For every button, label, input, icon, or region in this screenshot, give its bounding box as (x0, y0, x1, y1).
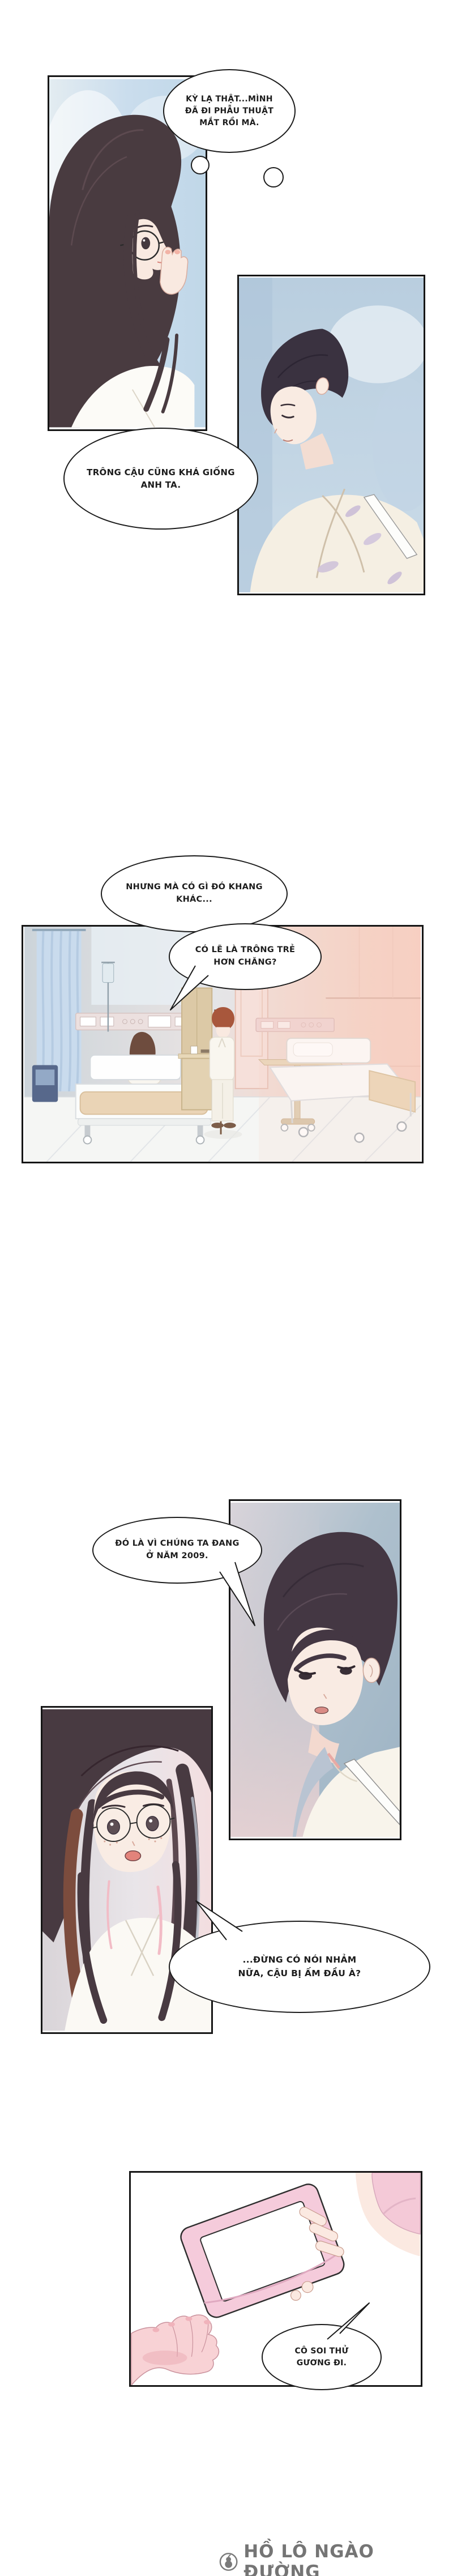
bubble-line: TRÔNG CẬU CŨNG KHÁ GIỐNG (87, 466, 235, 479)
bubble-line: ĐÃ ĐI PHẪU THUẬT (185, 105, 273, 117)
translator-credit: HỒ LÔ NGÀO ĐƯỜNG (219, 2541, 453, 2576)
bubble-tail (190, 1895, 249, 1946)
bubble-line: CÓ LẼ LÀ TRÔNG TRẺ (195, 944, 296, 957)
speech-bubble-something-off: NHƯNG MÀ CÓ GÌ ĐÓ KHANG KHÁC... (101, 855, 288, 932)
bubble-line: MẮT RỒI MÀ. (199, 117, 259, 129)
credit-text: HỒ LÔ NGÀO ĐƯỜNG (243, 2541, 453, 2576)
webtoon-page: KỲ LẠ THẬT...MÌNH ĐÃ ĐI PHẪU THUẬT MẮT R… (0, 0, 453, 2576)
thought-bubble-eye-surgery: KỲ LẠ THẬT...MÌNH ĐÃ ĐI PHẪU THUẬT MẮT R… (163, 69, 296, 153)
bubble-tail (161, 956, 218, 1013)
thought-trail-circle (263, 167, 284, 187)
bubble-line: HƠN CHĂNG? (213, 957, 276, 969)
gourd-logo-icon (219, 2552, 238, 2572)
bubble-line: KỲ LẠ THẬT...MÌNH (186, 93, 273, 105)
bubble-tail (212, 1558, 263, 1631)
bubble-line: KHÁC... (176, 894, 212, 906)
bubble-tail (320, 2298, 377, 2344)
bubble-line: NỮA, CẬU BỊ ẤM ĐẦU À? (238, 1967, 361, 1980)
panel-boy-bowing (237, 275, 425, 595)
speech-bubble-looks-like-him: TRÔNG CẬU CŨNG KHÁ GIỐNG ANH TA. (63, 428, 258, 530)
bubble-line: NHƯNG MÀ CÓ GÌ ĐÓ KHANG (126, 881, 263, 894)
bubble-line: ...ĐỪNG CÓ NÓI NHẢM (242, 1954, 356, 1967)
boy-bowing-illustration (239, 276, 424, 594)
bubble-line: CÔ SOI THỬ (294, 2345, 348, 2357)
bubble-line: ĐÓ LÀ VÌ CHÚNG TA ĐANG (115, 1538, 239, 1550)
thought-trail-circle (191, 156, 210, 174)
bubble-line: GƯƠNG ĐI. (297, 2357, 347, 2369)
bubble-line: Ở NĂM 2009. (146, 1550, 208, 1563)
bubble-line: ANH TA. (141, 479, 181, 492)
